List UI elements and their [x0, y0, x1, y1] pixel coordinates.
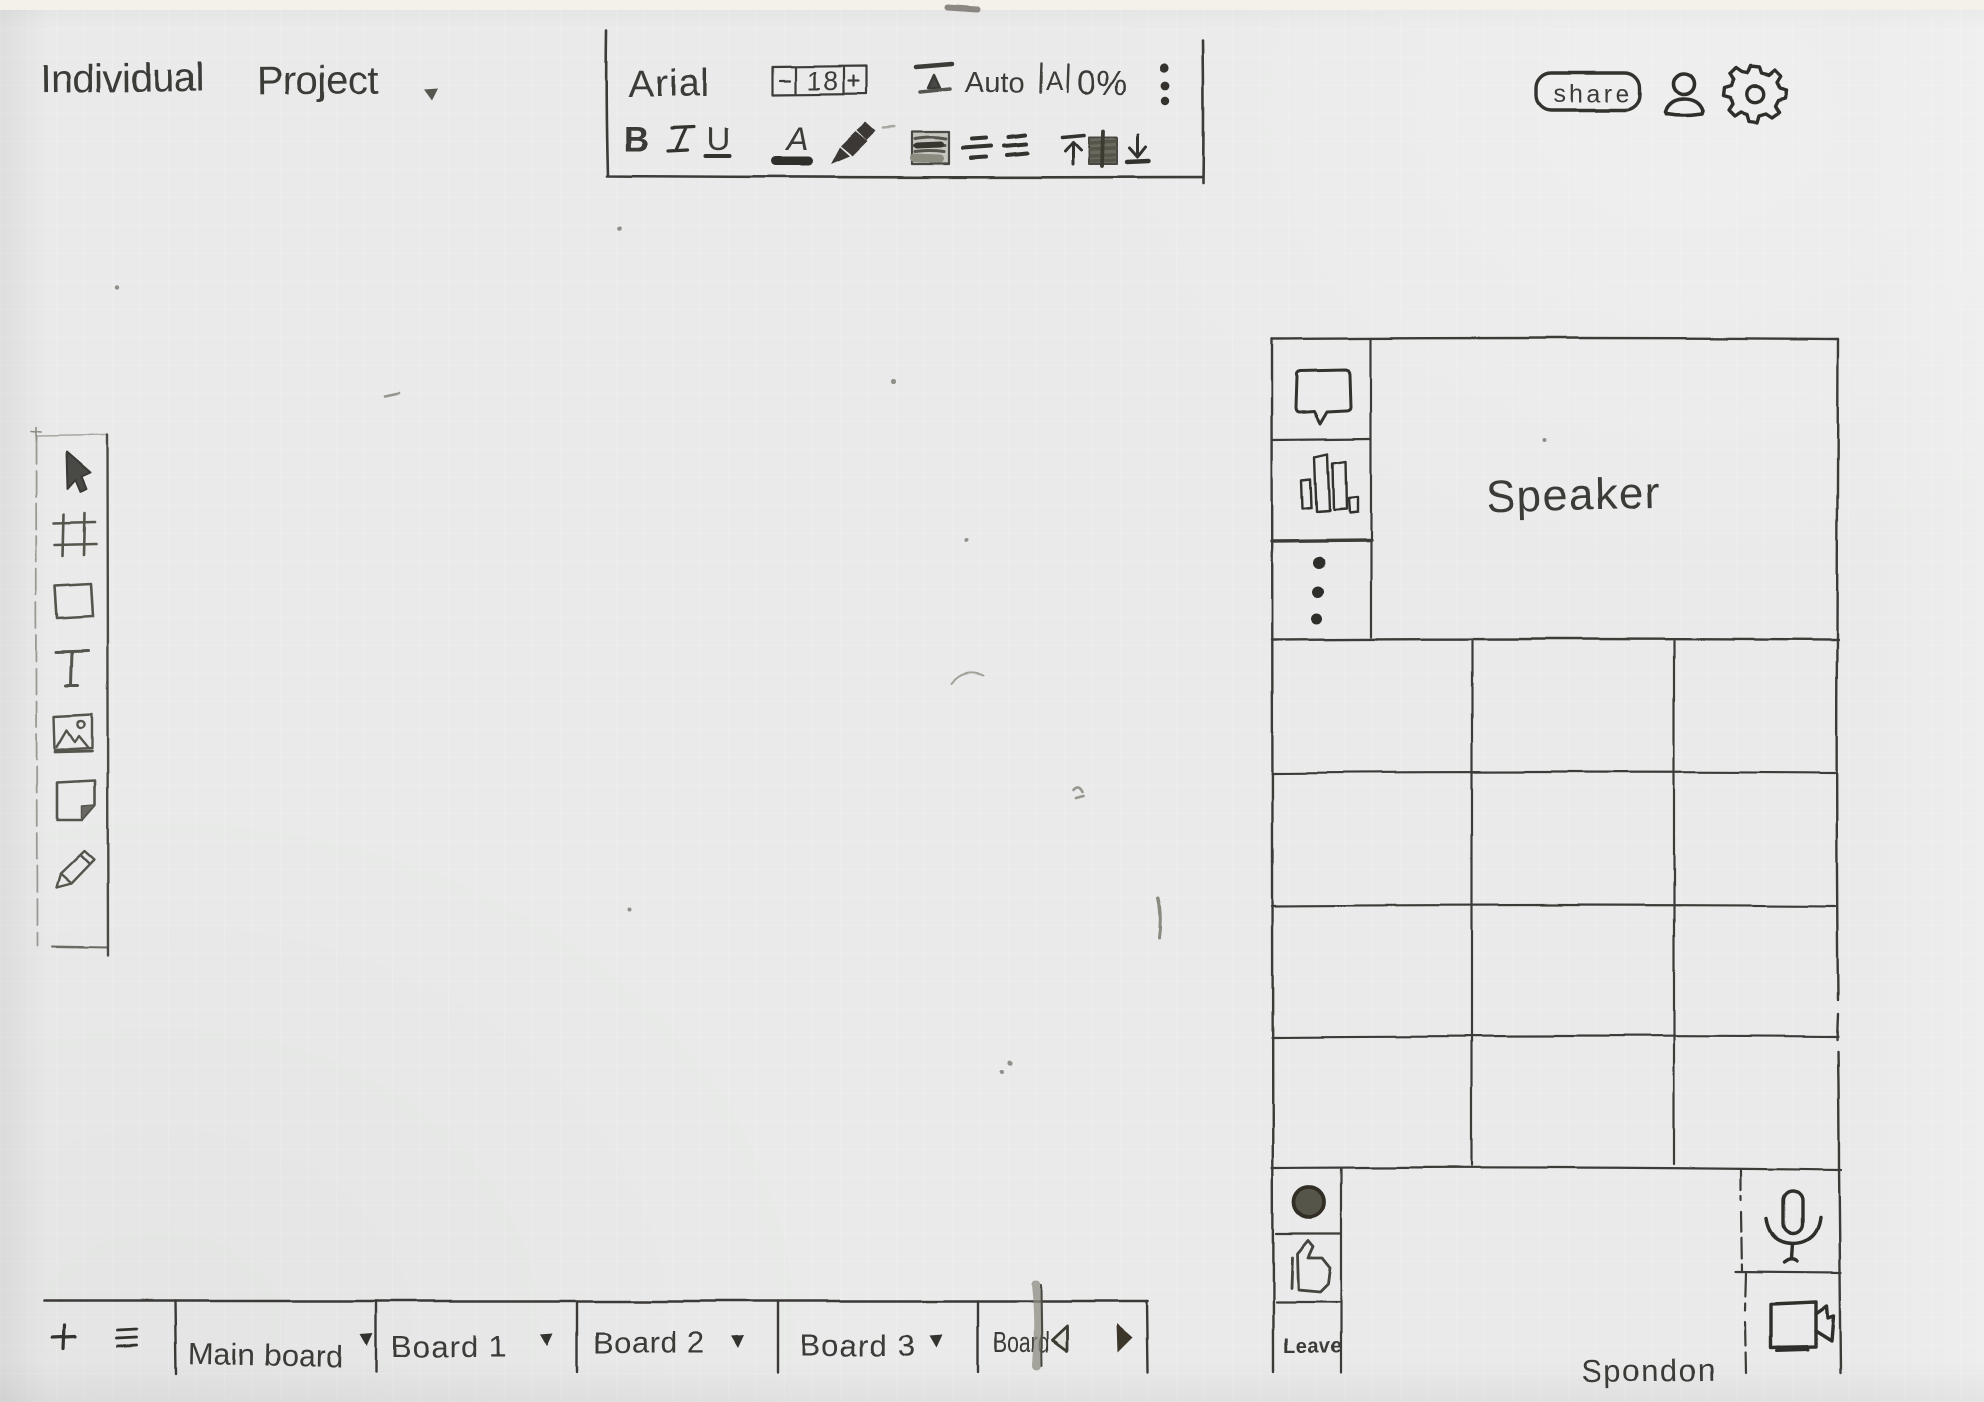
- svg-text:Arial: Arial: [629, 63, 710, 105]
- svg-text:Individual: Individual: [40, 56, 204, 102]
- svg-text:Speaker: Speaker: [1486, 468, 1662, 522]
- svg-text:A: A: [784, 120, 808, 157]
- svg-text:Leave: Leave: [1283, 1335, 1342, 1357]
- svg-text:0%: 0%: [1077, 64, 1128, 102]
- svg-text:B: B: [624, 120, 649, 159]
- svg-text:Spondon: Spondon: [1582, 1352, 1717, 1389]
- svg-text:A: A: [1045, 66, 1063, 96]
- svg-text:Main board: Main board: [187, 1336, 343, 1374]
- svg-text:Project: Project: [257, 58, 379, 103]
- svg-text:18: 18: [806, 66, 840, 96]
- svg-text:share: share: [1553, 80, 1633, 108]
- svg-text:Board 2: Board 2: [593, 1325, 705, 1360]
- svg-text:U: U: [707, 120, 731, 157]
- svg-text:Board 3: Board 3: [800, 1328, 916, 1363]
- svg-text:Board 1: Board 1: [391, 1329, 507, 1364]
- svg-text:Auto: Auto: [965, 67, 1025, 99]
